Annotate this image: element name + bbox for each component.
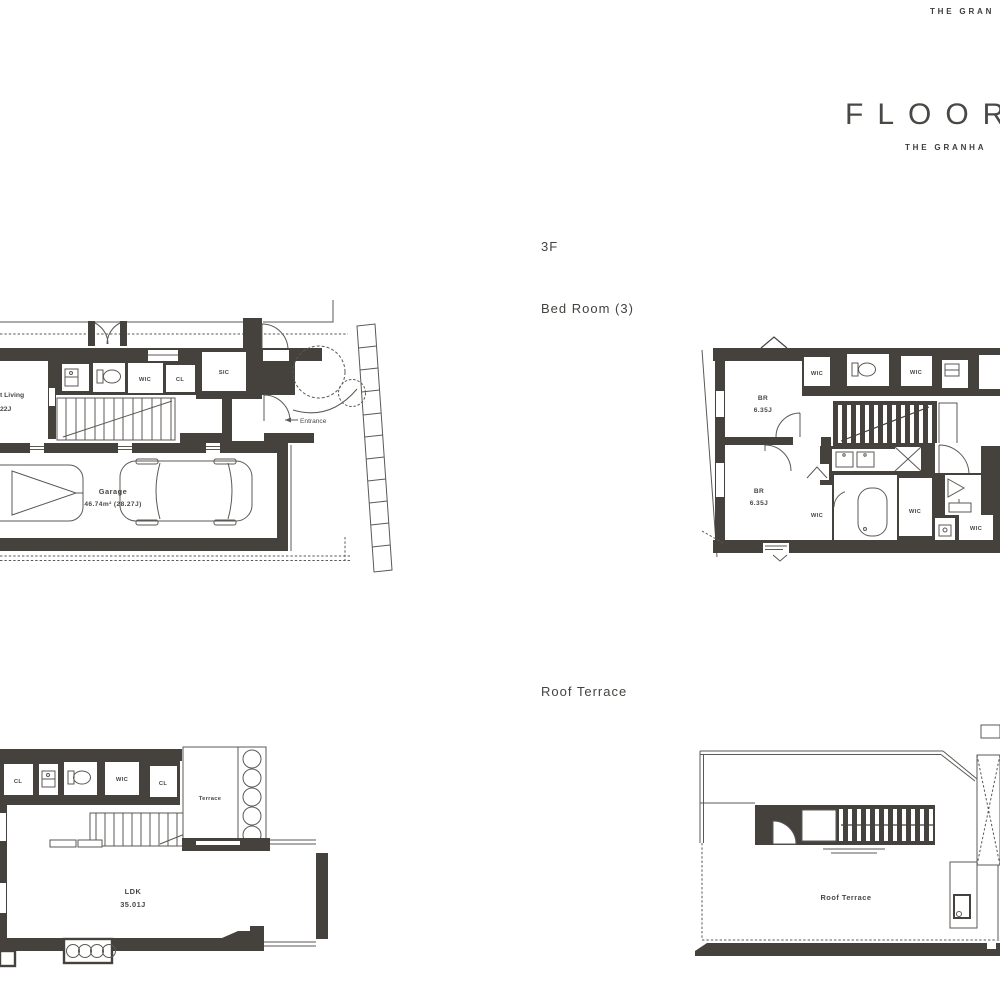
terrace-label: Terrace xyxy=(199,796,222,802)
bedroom-section-label: Bed Room (3) xyxy=(541,301,634,316)
br2-label: BR xyxy=(754,488,764,495)
cl-label: CL xyxy=(14,779,22,785)
wic-label: WIC xyxy=(811,371,824,377)
garage-area-label: 46.74m² (28.27J) xyxy=(84,501,141,508)
planter-box xyxy=(64,939,112,963)
top-rooms: CL WIC CL xyxy=(4,762,177,797)
car-icon xyxy=(120,459,252,525)
gate-icons xyxy=(88,318,288,350)
bathroom xyxy=(845,475,897,540)
br1-label: BR xyxy=(758,395,768,402)
bedroom-1: BR 6.35J xyxy=(725,361,802,437)
wic-label: WIC xyxy=(909,509,922,515)
entrance-label: Entrance xyxy=(300,418,327,425)
plan-3f-left: WIC CL SIC t Living 22J Entrance xyxy=(0,293,395,575)
stairs-icon xyxy=(755,805,935,853)
stairs-icon xyxy=(833,401,957,447)
void-icon xyxy=(977,755,1000,865)
wic-label: WIC xyxy=(970,526,983,532)
car-icon-2 xyxy=(0,465,83,521)
wic-label: WIC xyxy=(116,777,129,783)
wic-label: WIC xyxy=(910,370,923,376)
stairs-icon xyxy=(57,398,175,440)
sic-label: SIC xyxy=(219,370,230,376)
bedroom-2: BR 6.35J WIC xyxy=(725,445,832,540)
br1-area-label: 6.35J xyxy=(754,407,773,414)
wic-label: WIC xyxy=(811,513,824,519)
walls-bottom xyxy=(695,943,1000,956)
garage: Garage 46.74m² (28.27J) xyxy=(0,443,350,561)
cl-label: CL xyxy=(176,377,184,383)
plan-3f-bedrooms: BR 6.35J WIC WIC xyxy=(695,333,1000,563)
vent-icon xyxy=(761,337,787,348)
plan-roof-terrace: Roof Terrace xyxy=(695,723,1000,958)
living-label: t Living xyxy=(0,392,24,399)
terrace: Terrace xyxy=(182,747,316,851)
floor-label: 3F xyxy=(541,239,558,254)
planter-column xyxy=(238,747,266,844)
ldk-room: LDK 35.01J xyxy=(120,887,146,909)
terrace-area: Roof Terrace xyxy=(820,862,998,939)
living-area-label: 22J xyxy=(0,406,12,413)
bath-block: WIC WIC xyxy=(832,443,993,540)
page-subtitle: THE GRANHA xyxy=(905,143,986,152)
garage-label: Garage xyxy=(99,487,127,496)
living-labels: t Living 22J xyxy=(0,392,24,413)
ldk-area-label: 35.01J xyxy=(120,900,146,909)
walls-bottom xyxy=(0,853,328,966)
roof-terrace-section-label: Roof Terrace xyxy=(541,684,627,699)
brand-top-text: THE GRAN xyxy=(930,7,994,16)
powder-room xyxy=(945,475,981,515)
plan-ldk: CL WIC CL Terrace xyxy=(0,733,335,978)
page-title: FLOOR xyxy=(845,98,1000,132)
roof-terrace-label: Roof Terrace xyxy=(820,893,871,902)
br2-area-label: 6.35J xyxy=(750,500,769,507)
stepped-slope xyxy=(357,324,392,572)
cl-label: CL xyxy=(159,781,167,787)
floor-plan-page: THE GRAN FLOOR THE GRANHA 3F Bed Room (3… xyxy=(0,0,1000,1000)
ldk-label: LDK xyxy=(125,887,142,896)
wic-label: WIC xyxy=(139,377,152,383)
